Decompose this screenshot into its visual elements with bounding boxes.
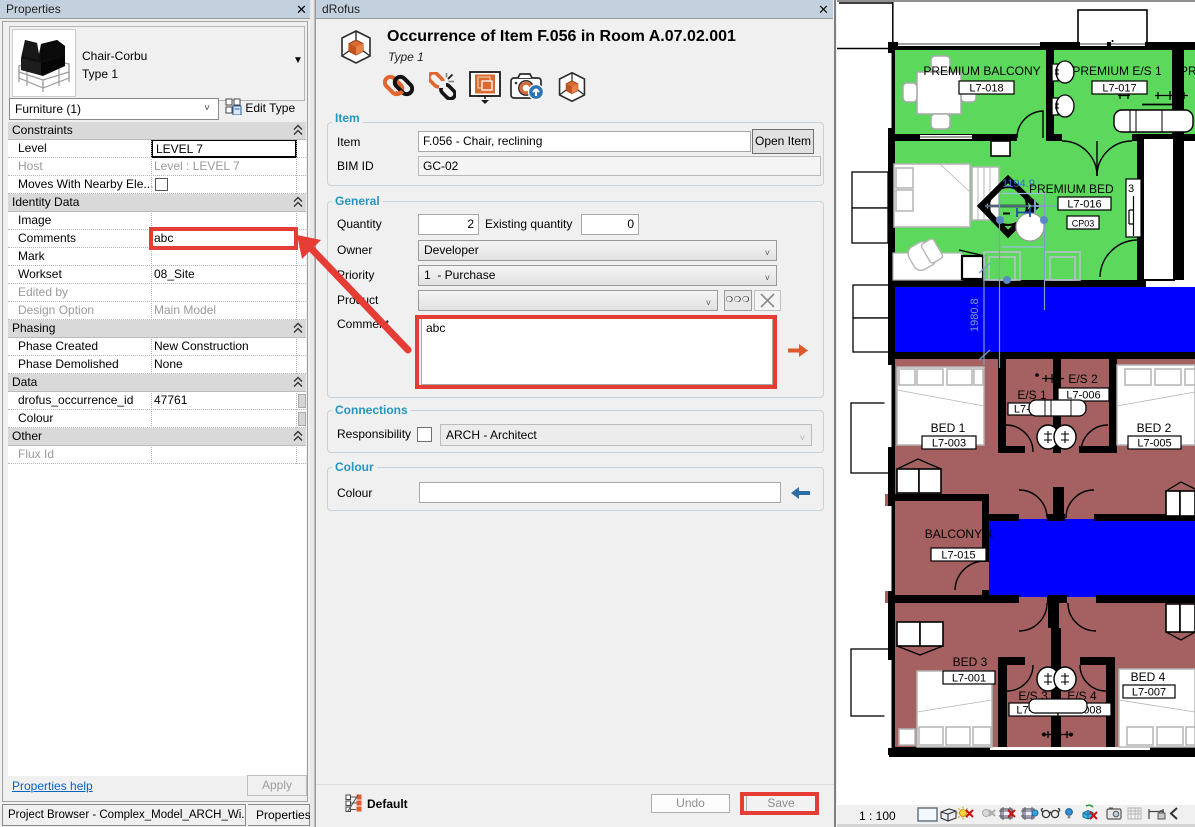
svg-text:L7-007: L7-007: [1132, 687, 1166, 699]
svg-text:L7-005: L7-005: [1137, 438, 1171, 450]
svg-text:3: 3: [1128, 183, 1134, 195]
svg-text:1980.8: 1980.8: [969, 298, 981, 332]
svg-text:PREMIUM E/S 1: PREMIUM E/S 1: [1072, 64, 1162, 78]
svg-text:PR: PR: [1180, 64, 1195, 78]
svg-text:L7-001: L7-001: [952, 673, 986, 685]
svg-text:PREMIUM BALCONY: PREMIUM BALCONY: [923, 64, 1040, 78]
svg-text:CP03: CP03: [1072, 219, 1095, 229]
svg-text:1 : 100: 1 : 100: [859, 809, 896, 823]
svg-text:L7-017: L7-017: [1102, 83, 1136, 95]
svg-text:BALCONY X: BALCONY X: [925, 527, 993, 541]
svg-text:L7-003: L7-003: [932, 438, 966, 450]
svg-text:BED 2: BED 2: [1137, 421, 1172, 435]
svg-text:BED 1: BED 1: [931, 421, 966, 435]
svg-text:L7-015: L7-015: [941, 550, 975, 562]
svg-text:BED 4: BED 4: [1131, 670, 1166, 684]
svg-text:E/S 2: E/S 2: [1068, 372, 1098, 386]
svg-text:L7-018: L7-018: [969, 83, 1003, 95]
svg-text:L7-016: L7-016: [1067, 199, 1101, 211]
svg-text:BED 3: BED 3: [953, 655, 988, 669]
svg-text:PREMIUM BED: PREMIUM BED: [1029, 182, 1114, 196]
